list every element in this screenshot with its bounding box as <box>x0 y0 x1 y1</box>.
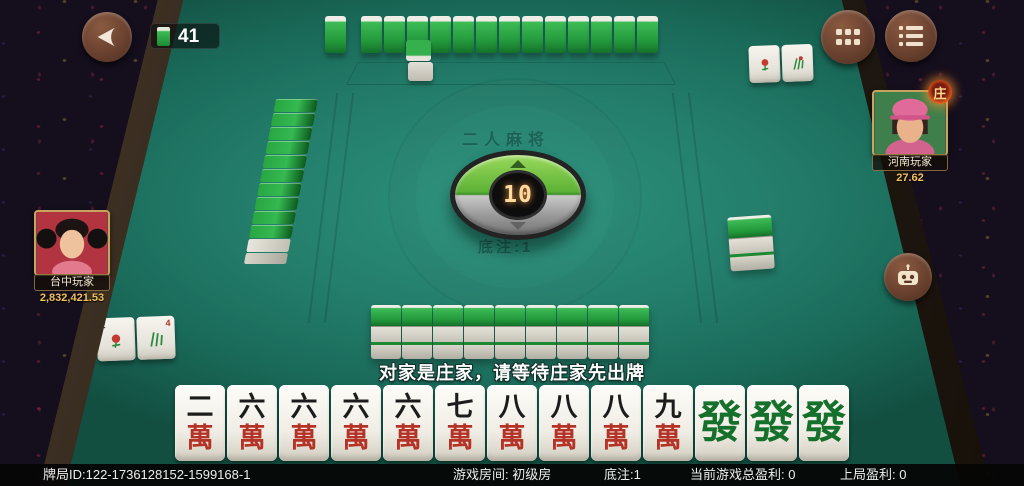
tile-suit-char: 萬 <box>395 423 422 454</box>
tile-suit-char: 萬 <box>239 423 266 454</box>
total-profit-label: 当前游戏总盈利: 0 <box>690 464 795 486</box>
dealer-badge: 庄 <box>928 80 952 104</box>
wall-tile <box>384 16 405 53</box>
tiles-remaining-badge: 41 <box>150 23 220 49</box>
wall-stack <box>557 305 587 359</box>
hand-tile[interactable]: 六萬 <box>331 385 381 461</box>
tile-face-char: 發 <box>750 390 794 456</box>
wall-tile <box>588 326 618 342</box>
player-flower-tiles: 2 4 <box>96 316 175 362</box>
wall-tile <box>402 326 432 342</box>
tile-face-char: 六 <box>291 392 318 423</box>
wall-tile <box>453 16 474 53</box>
wall-tile <box>619 326 649 342</box>
tile-suit-char: 萬 <box>655 423 682 454</box>
wall-stack <box>619 305 649 359</box>
player-panel-right[interactable]: 庄 河南玩家 27.62 <box>872 90 948 185</box>
wall-tile <box>557 326 587 342</box>
wall-tile <box>252 211 297 224</box>
back-arrow-icon <box>94 24 120 50</box>
tile-counter-dial[interactable]: 10 <box>450 150 586 240</box>
table-watermark-title: 二人麻将 <box>462 126 550 150</box>
flower-tile <box>781 44 813 82</box>
tile-face-char: 發 <box>698 390 742 456</box>
wall-tile <box>557 305 587 326</box>
tile-face-char: 六 <box>395 392 422 423</box>
grid-icon <box>835 27 861 47</box>
wall-tile <box>268 127 313 140</box>
wall-tile <box>464 345 494 359</box>
hand-tile[interactable]: 八萬 <box>487 385 537 461</box>
wall-tile <box>371 305 401 326</box>
tile-face-char: 八 <box>499 392 526 423</box>
wall-tile <box>495 305 525 326</box>
wall-tile <box>591 16 612 53</box>
left-wall <box>244 99 318 264</box>
wall-tile <box>588 345 618 359</box>
wall-tile <box>495 326 525 342</box>
auto-play-button[interactable] <box>884 253 932 301</box>
game-id-label: 牌局ID:122-1736128152-1599168-1 <box>43 464 250 486</box>
wall-tile <box>526 345 556 359</box>
grid-menu-button[interactable] <box>821 10 875 64</box>
wall-tile <box>265 141 310 154</box>
drawn-tile-stack <box>406 40 431 61</box>
tile-face-char: 八 <box>551 392 578 423</box>
tile-suit-char: 萬 <box>291 423 318 454</box>
tile-face-char: 七 <box>447 392 474 423</box>
tile-face-char: 發 <box>802 390 846 456</box>
hand-tile[interactable]: 七萬 <box>435 385 485 461</box>
wall-tile <box>433 326 463 342</box>
player-hand: 二萬六萬六萬六萬六萬七萬八萬八萬八萬九萬發發發 <box>175 385 849 461</box>
wall-tile <box>249 225 294 238</box>
wall-tile <box>619 305 649 326</box>
tile-face-char: 六 <box>239 392 266 423</box>
hand-tile[interactable]: 發 <box>695 385 745 461</box>
wall-tile <box>464 305 494 326</box>
wall-tile <box>402 345 432 359</box>
player-avatar <box>34 210 110 276</box>
dial-number: 10 <box>503 182 533 208</box>
avatar-image-left <box>36 212 108 274</box>
wall-tile <box>526 326 556 342</box>
flower-art-icon <box>145 327 168 350</box>
wall-tile <box>730 254 775 271</box>
hand-tile[interactable]: 六萬 <box>227 385 277 461</box>
list-icon <box>898 25 924 47</box>
wall-tile <box>325 16 346 53</box>
wall-tile <box>371 326 401 342</box>
wall-tile <box>588 305 618 326</box>
turn-message: 对家是庄家，请等待庄家先出牌 <box>0 359 1024 385</box>
wall-tile <box>522 16 543 53</box>
tile-back-icon <box>157 27 170 46</box>
player-panel-left[interactable]: 台中玩家 2,832,421.53 <box>34 210 110 305</box>
wall-tile <box>244 253 288 264</box>
wall-tile <box>637 16 658 53</box>
wall-tile <box>464 326 494 342</box>
arrow-down-icon <box>510 222 526 230</box>
base-bet-label: 底注:1 <box>604 464 641 486</box>
room-label: 游戏房间: 初级房 <box>453 464 551 486</box>
player-name: 台中玩家 <box>34 274 110 291</box>
hand-tile[interactable]: 發 <box>747 385 797 461</box>
player-balance: 2,832,421.53 <box>34 291 110 305</box>
game-screen: 二人麻将 底注:1 <box>0 0 1024 486</box>
status-bar: 牌局ID:122-1736128152-1599168-1 游戏房间: 初级房 … <box>0 464 1024 486</box>
wall-tile <box>430 16 451 53</box>
right-wall-stack <box>727 215 775 272</box>
wall-tile <box>246 239 291 252</box>
tile-suit-char: 萬 <box>603 423 630 454</box>
wall-stack <box>371 305 401 359</box>
wall-stack <box>526 305 556 359</box>
felt-line <box>672 93 702 324</box>
player-balance: 27.62 <box>872 171 948 185</box>
hand-tile[interactable]: 八萬 <box>591 385 641 461</box>
tile-face-char: 二 <box>187 392 214 423</box>
tile-suit-char: 萬 <box>187 423 214 454</box>
tile-suit-char: 萬 <box>551 423 578 454</box>
dial-display: 10 <box>489 170 547 220</box>
wall-stack <box>402 305 432 359</box>
flower-tile <box>748 45 780 83</box>
wall-tile <box>260 169 305 182</box>
wall-tile <box>433 345 463 359</box>
wall-stack <box>495 305 525 359</box>
tiles-remaining-count: 41 <box>178 27 199 46</box>
wall-tile <box>263 155 308 168</box>
hand-tile[interactable]: 六萬 <box>279 385 329 461</box>
wall-tile <box>433 305 463 326</box>
wall-tile <box>614 16 635 53</box>
tile-face-char: 八 <box>603 392 630 423</box>
hand-tile[interactable]: 八萬 <box>539 385 589 461</box>
wall-tile <box>271 113 316 126</box>
wall-tile <box>495 345 525 359</box>
wall-tile <box>568 16 589 53</box>
hand-tile[interactable]: 二萬 <box>175 385 225 461</box>
flower-art-icon <box>755 56 774 75</box>
hand-tile[interactable]: 九萬 <box>643 385 693 461</box>
wall-tile <box>545 16 566 53</box>
tile-face-char: 九 <box>655 392 682 423</box>
discard-zone-outline <box>346 62 677 85</box>
tile-suit-char: 萬 <box>499 423 526 454</box>
wall-tile <box>557 345 587 359</box>
felt-line <box>688 93 718 324</box>
flower-tile: 4 <box>136 316 175 360</box>
tile-suit-char: 萬 <box>447 423 474 454</box>
wall-tile <box>254 197 299 210</box>
player-name: 河南玩家 <box>872 154 948 171</box>
wall-tile <box>371 345 401 359</box>
tile-suit-char: 萬 <box>343 423 370 454</box>
player-wall <box>371 305 649 359</box>
flower-art-icon <box>788 54 807 73</box>
hand-tile[interactable]: 六萬 <box>383 385 433 461</box>
wall-stack <box>433 305 463 359</box>
drawn-tile-stack <box>408 62 433 81</box>
last-round-profit-label: 上局盈利: 0 <box>840 464 906 486</box>
flower-art-icon <box>105 329 128 352</box>
arrow-up-icon <box>510 160 526 168</box>
wall-tile <box>499 16 520 53</box>
wall-tile <box>257 183 302 196</box>
wall-stack <box>464 305 494 359</box>
felt-line <box>324 93 354 324</box>
wall-tile <box>476 16 497 53</box>
wall-tile <box>402 305 432 326</box>
tile-face-char: 六 <box>343 392 370 423</box>
wall-tile <box>619 345 649 359</box>
back-button[interactable] <box>82 12 132 62</box>
wall-stack <box>588 305 618 359</box>
list-menu-button[interactable] <box>885 10 937 62</box>
robot-icon <box>895 264 921 290</box>
wall-tile <box>273 99 318 112</box>
hand-tile[interactable]: 發 <box>799 385 849 461</box>
opponent-flower-tiles <box>748 44 813 83</box>
wall-tile <box>361 16 382 53</box>
wall-tile <box>526 305 556 326</box>
